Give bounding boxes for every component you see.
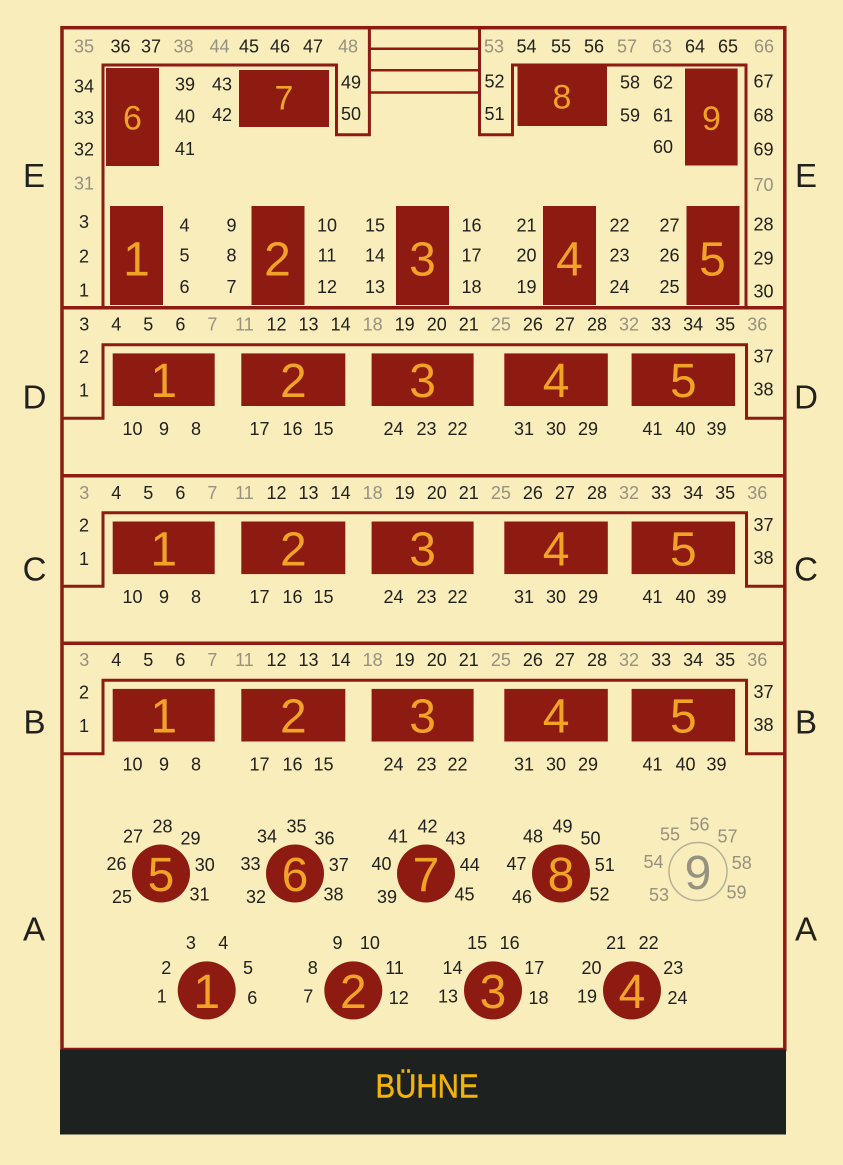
svg-text:21: 21 — [459, 650, 479, 670]
svg-text:66: 66 — [754, 37, 774, 57]
svg-text:30: 30 — [546, 587, 566, 607]
svg-text:28: 28 — [587, 315, 607, 335]
svg-text:3: 3 — [480, 966, 507, 1019]
svg-text:1: 1 — [79, 381, 89, 401]
svg-text:52: 52 — [589, 885, 609, 905]
svg-text:7: 7 — [303, 987, 313, 1007]
svg-text:20: 20 — [581, 958, 601, 978]
svg-text:27: 27 — [555, 483, 575, 503]
svg-text:7: 7 — [275, 79, 294, 117]
svg-text:35: 35 — [715, 650, 735, 670]
svg-text:23: 23 — [416, 419, 436, 439]
svg-text:20: 20 — [427, 483, 447, 503]
svg-text:38: 38 — [753, 380, 773, 400]
svg-text:26: 26 — [659, 246, 679, 266]
svg-text:30: 30 — [195, 855, 215, 875]
svg-text:1: 1 — [150, 691, 177, 744]
svg-text:3: 3 — [409, 691, 436, 744]
svg-text:55: 55 — [660, 825, 680, 845]
svg-text:33: 33 — [74, 108, 94, 128]
svg-text:C: C — [794, 551, 818, 588]
svg-text:34: 34 — [683, 483, 703, 503]
svg-text:15: 15 — [313, 419, 333, 439]
svg-text:43: 43 — [212, 75, 232, 95]
svg-text:35: 35 — [286, 817, 306, 837]
svg-text:21: 21 — [459, 315, 479, 335]
svg-text:47: 47 — [303, 37, 323, 57]
svg-text:25: 25 — [491, 483, 511, 503]
svg-text:20: 20 — [427, 650, 447, 670]
svg-text:20: 20 — [516, 246, 536, 266]
svg-text:36: 36 — [314, 829, 334, 849]
svg-text:27: 27 — [123, 827, 143, 847]
svg-text:30: 30 — [753, 282, 773, 302]
svg-text:5: 5 — [243, 958, 253, 978]
svg-text:12: 12 — [389, 988, 409, 1008]
svg-text:31: 31 — [189, 885, 209, 905]
svg-text:60: 60 — [653, 137, 673, 157]
svg-text:4: 4 — [218, 933, 228, 953]
svg-text:2: 2 — [79, 515, 89, 535]
svg-text:1: 1 — [79, 716, 89, 736]
svg-text:1: 1 — [150, 355, 177, 408]
svg-text:12: 12 — [266, 650, 286, 670]
svg-text:1: 1 — [193, 966, 220, 1019]
svg-text:9: 9 — [159, 587, 169, 607]
svg-text:13: 13 — [299, 315, 319, 335]
svg-text:10: 10 — [317, 216, 337, 236]
svg-text:6: 6 — [123, 99, 142, 137]
svg-text:5: 5 — [670, 523, 697, 576]
svg-text:32: 32 — [619, 483, 639, 503]
svg-text:56: 56 — [689, 815, 709, 835]
svg-text:11: 11 — [235, 315, 254, 335]
svg-text:18: 18 — [363, 483, 383, 503]
svg-text:26: 26 — [523, 650, 543, 670]
svg-text:4: 4 — [556, 234, 583, 287]
svg-text:25: 25 — [659, 277, 679, 297]
svg-text:16: 16 — [461, 216, 481, 236]
svg-text:15: 15 — [313, 755, 333, 775]
svg-text:46: 46 — [270, 37, 290, 57]
svg-text:6: 6 — [282, 849, 309, 902]
svg-text:40: 40 — [175, 107, 195, 127]
svg-text:3: 3 — [409, 355, 436, 408]
svg-text:32: 32 — [246, 887, 266, 907]
svg-text:26: 26 — [523, 315, 543, 335]
svg-text:5: 5 — [670, 691, 697, 744]
svg-text:8: 8 — [553, 78, 572, 116]
svg-text:32: 32 — [619, 315, 639, 335]
svg-text:18: 18 — [528, 988, 548, 1008]
svg-text:41: 41 — [175, 139, 195, 159]
svg-text:41: 41 — [388, 827, 408, 847]
svg-text:15: 15 — [313, 587, 333, 607]
svg-text:39: 39 — [377, 887, 397, 907]
svg-text:6: 6 — [179, 277, 189, 297]
svg-text:17: 17 — [249, 587, 269, 607]
svg-text:10: 10 — [122, 755, 142, 775]
svg-text:29: 29 — [578, 755, 598, 775]
svg-text:2: 2 — [161, 958, 171, 978]
svg-text:28: 28 — [587, 483, 607, 503]
svg-text:7: 7 — [207, 650, 217, 670]
svg-text:8: 8 — [191, 755, 201, 775]
svg-text:2: 2 — [340, 966, 367, 1019]
svg-text:62: 62 — [653, 73, 673, 93]
svg-text:16: 16 — [282, 419, 302, 439]
svg-text:27: 27 — [659, 216, 679, 236]
svg-text:14: 14 — [365, 246, 385, 266]
svg-text:9: 9 — [332, 933, 342, 953]
svg-text:36: 36 — [110, 37, 130, 57]
svg-text:42: 42 — [212, 105, 232, 125]
svg-text:37: 37 — [329, 855, 349, 875]
svg-text:4: 4 — [111, 650, 121, 670]
svg-text:35: 35 — [715, 483, 735, 503]
svg-text:51: 51 — [595, 855, 615, 875]
svg-text:4: 4 — [111, 315, 121, 335]
svg-text:3: 3 — [79, 483, 89, 503]
svg-text:25: 25 — [491, 315, 511, 335]
svg-text:23: 23 — [663, 958, 683, 978]
svg-text:39: 39 — [706, 419, 726, 439]
svg-text:10: 10 — [122, 587, 142, 607]
svg-text:11: 11 — [318, 246, 337, 266]
svg-text:28: 28 — [587, 650, 607, 670]
svg-text:57: 57 — [617, 37, 637, 57]
svg-text:19: 19 — [395, 483, 415, 503]
svg-text:7: 7 — [226, 277, 236, 297]
svg-text:49: 49 — [341, 73, 361, 93]
svg-text:8: 8 — [548, 849, 575, 902]
svg-text:B: B — [23, 704, 45, 741]
svg-text:69: 69 — [753, 140, 773, 160]
svg-text:55: 55 — [551, 37, 571, 57]
svg-text:44: 44 — [209, 37, 229, 57]
svg-text:40: 40 — [675, 419, 695, 439]
svg-text:24: 24 — [383, 755, 403, 775]
svg-text:37: 37 — [753, 682, 773, 702]
svg-text:58: 58 — [732, 853, 752, 873]
svg-text:19: 19 — [577, 987, 597, 1007]
svg-text:5: 5 — [143, 650, 153, 670]
svg-text:19: 19 — [395, 315, 415, 335]
svg-text:E: E — [795, 157, 817, 194]
svg-text:38: 38 — [753, 715, 773, 735]
svg-text:12: 12 — [317, 277, 337, 297]
svg-text:2: 2 — [79, 683, 89, 703]
svg-text:1: 1 — [123, 234, 150, 287]
svg-text:39: 39 — [706, 755, 726, 775]
svg-text:2: 2 — [280, 523, 307, 576]
svg-text:54: 54 — [643, 852, 663, 872]
svg-text:37: 37 — [753, 515, 773, 535]
svg-text:61: 61 — [653, 106, 673, 126]
svg-text:33: 33 — [651, 315, 671, 335]
svg-text:4: 4 — [619, 966, 646, 1019]
svg-text:23: 23 — [416, 755, 436, 775]
svg-text:29: 29 — [753, 249, 773, 269]
svg-text:29: 29 — [578, 587, 598, 607]
svg-text:39: 39 — [175, 75, 195, 95]
svg-text:30: 30 — [546, 419, 566, 439]
svg-text:22: 22 — [447, 755, 467, 775]
svg-text:36: 36 — [747, 315, 767, 335]
svg-text:40: 40 — [371, 854, 391, 874]
svg-text:9: 9 — [702, 100, 721, 138]
svg-text:A: A — [795, 911, 817, 948]
svg-text:13: 13 — [438, 987, 458, 1007]
svg-text:B: B — [795, 704, 817, 741]
svg-text:33: 33 — [651, 483, 671, 503]
svg-text:14: 14 — [331, 315, 351, 335]
svg-text:29: 29 — [578, 419, 598, 439]
svg-text:23: 23 — [416, 587, 436, 607]
svg-text:38: 38 — [173, 37, 193, 57]
svg-text:31: 31 — [514, 419, 534, 439]
svg-text:13: 13 — [299, 650, 319, 670]
svg-text:70: 70 — [753, 175, 773, 195]
svg-text:5: 5 — [699, 234, 726, 287]
svg-text:41: 41 — [642, 755, 662, 775]
svg-text:8: 8 — [191, 587, 201, 607]
svg-text:21: 21 — [606, 933, 626, 953]
svg-text:34: 34 — [257, 827, 277, 847]
svg-text:57: 57 — [717, 827, 737, 847]
svg-text:23: 23 — [609, 246, 629, 266]
svg-text:27: 27 — [555, 315, 575, 335]
svg-text:40: 40 — [675, 755, 695, 775]
svg-text:12: 12 — [266, 315, 286, 335]
svg-text:11: 11 — [235, 650, 254, 670]
svg-text:4: 4 — [543, 355, 570, 408]
svg-text:45: 45 — [454, 885, 474, 905]
svg-text:12: 12 — [266, 483, 286, 503]
svg-text:52: 52 — [484, 72, 504, 92]
svg-text:21: 21 — [516, 216, 536, 236]
svg-text:64: 64 — [685, 37, 705, 57]
svg-text:37: 37 — [753, 347, 773, 367]
svg-text:E: E — [23, 157, 45, 194]
svg-text:48: 48 — [523, 827, 543, 847]
svg-text:8: 8 — [226, 246, 236, 266]
svg-text:4: 4 — [111, 483, 121, 503]
svg-text:54: 54 — [516, 37, 536, 57]
svg-text:34: 34 — [74, 77, 94, 97]
svg-text:15: 15 — [365, 216, 385, 236]
svg-text:5: 5 — [143, 315, 153, 335]
svg-text:4: 4 — [179, 216, 189, 236]
svg-text:45: 45 — [239, 37, 259, 57]
svg-text:67: 67 — [753, 72, 773, 92]
svg-text:3: 3 — [79, 315, 89, 335]
svg-text:40: 40 — [675, 587, 695, 607]
svg-text:8: 8 — [308, 958, 318, 978]
svg-text:1: 1 — [157, 987, 167, 1007]
svg-text:16: 16 — [500, 933, 520, 953]
svg-text:21: 21 — [459, 483, 479, 503]
svg-text:16: 16 — [282, 755, 302, 775]
svg-text:10: 10 — [122, 419, 142, 439]
svg-text:9: 9 — [226, 216, 236, 236]
svg-text:1: 1 — [150, 523, 177, 576]
svg-text:39: 39 — [706, 587, 726, 607]
svg-text:1: 1 — [79, 549, 89, 569]
svg-text:37: 37 — [141, 37, 161, 57]
svg-text:47: 47 — [506, 854, 526, 874]
svg-text:31: 31 — [74, 174, 94, 194]
svg-text:19: 19 — [516, 277, 536, 297]
svg-text:3: 3 — [79, 212, 89, 232]
svg-text:59: 59 — [726, 883, 746, 903]
svg-text:10: 10 — [360, 933, 380, 953]
svg-text:13: 13 — [299, 483, 319, 503]
svg-text:6: 6 — [175, 315, 185, 335]
svg-text:14: 14 — [331, 650, 351, 670]
svg-text:41: 41 — [642, 587, 662, 607]
svg-text:56: 56 — [584, 37, 604, 57]
svg-text:18: 18 — [461, 277, 481, 297]
svg-text:6: 6 — [247, 988, 257, 1008]
svg-text:19: 19 — [395, 650, 415, 670]
svg-text:3: 3 — [186, 933, 196, 953]
svg-text:3: 3 — [409, 234, 436, 287]
svg-text:5: 5 — [670, 355, 697, 408]
svg-text:35: 35 — [715, 315, 735, 335]
svg-text:4: 4 — [543, 691, 570, 744]
svg-text:A: A — [23, 911, 45, 948]
svg-text:7: 7 — [207, 315, 217, 335]
svg-text:28: 28 — [753, 215, 773, 235]
svg-text:5: 5 — [143, 483, 153, 503]
svg-text:22: 22 — [609, 216, 629, 236]
svg-text:5: 5 — [179, 246, 189, 266]
svg-text:35: 35 — [74, 37, 94, 57]
svg-text:24: 24 — [609, 277, 629, 297]
svg-text:50: 50 — [580, 829, 600, 849]
svg-text:43: 43 — [445, 829, 465, 849]
svg-text:58: 58 — [620, 73, 640, 93]
svg-text:50: 50 — [341, 104, 361, 124]
svg-text:17: 17 — [249, 419, 269, 439]
svg-text:17: 17 — [249, 755, 269, 775]
svg-text:26: 26 — [106, 854, 126, 874]
svg-text:48: 48 — [338, 37, 358, 57]
svg-text:27: 27 — [555, 650, 575, 670]
svg-text:32: 32 — [619, 650, 639, 670]
svg-text:17: 17 — [461, 246, 481, 266]
svg-text:2: 2 — [264, 234, 291, 287]
svg-text:9: 9 — [159, 755, 169, 775]
svg-text:44: 44 — [460, 855, 480, 875]
svg-text:33: 33 — [651, 650, 671, 670]
svg-text:28: 28 — [152, 817, 172, 837]
svg-text:34: 34 — [683, 650, 703, 670]
svg-text:6: 6 — [175, 650, 185, 670]
svg-text:11: 11 — [385, 958, 404, 978]
svg-text:53: 53 — [484, 37, 504, 57]
svg-text:25: 25 — [491, 650, 511, 670]
svg-text:31: 31 — [514, 587, 534, 607]
svg-text:9: 9 — [685, 847, 712, 900]
svg-text:17: 17 — [524, 958, 544, 978]
svg-text:5: 5 — [148, 849, 175, 902]
svg-text:3: 3 — [79, 650, 89, 670]
svg-text:30: 30 — [546, 755, 566, 775]
svg-text:41: 41 — [642, 419, 662, 439]
svg-text:26: 26 — [523, 483, 543, 503]
svg-text:22: 22 — [639, 933, 659, 953]
svg-text:2: 2 — [79, 247, 89, 267]
svg-text:49: 49 — [552, 817, 572, 837]
svg-text:42: 42 — [417, 817, 437, 837]
svg-text:15: 15 — [467, 933, 487, 953]
svg-text:31: 31 — [514, 755, 534, 775]
svg-text:63: 63 — [652, 37, 672, 57]
svg-text:BÜHNE: BÜHNE — [376, 1069, 479, 1106]
svg-text:3: 3 — [409, 523, 436, 576]
svg-text:38: 38 — [753, 548, 773, 568]
svg-text:2: 2 — [280, 355, 307, 408]
svg-text:1: 1 — [79, 281, 89, 301]
svg-text:D: D — [794, 379, 818, 416]
svg-text:4: 4 — [543, 523, 570, 576]
svg-text:25: 25 — [112, 887, 132, 907]
svg-text:20: 20 — [427, 315, 447, 335]
svg-text:65: 65 — [718, 37, 738, 57]
svg-text:53: 53 — [649, 885, 669, 905]
svg-text:59: 59 — [620, 106, 640, 126]
svg-text:36: 36 — [747, 483, 767, 503]
svg-text:9: 9 — [159, 419, 169, 439]
svg-text:38: 38 — [323, 885, 343, 905]
svg-text:29: 29 — [180, 829, 200, 849]
svg-text:24: 24 — [667, 988, 687, 1008]
svg-text:51: 51 — [484, 104, 504, 124]
svg-text:34: 34 — [683, 315, 703, 335]
svg-text:13: 13 — [365, 277, 385, 297]
svg-text:16: 16 — [282, 587, 302, 607]
svg-text:2: 2 — [280, 691, 307, 744]
svg-text:18: 18 — [363, 315, 383, 335]
svg-text:7: 7 — [413, 849, 440, 902]
svg-text:68: 68 — [753, 106, 773, 126]
svg-text:36: 36 — [747, 650, 767, 670]
svg-text:8: 8 — [191, 419, 201, 439]
svg-text:33: 33 — [240, 854, 260, 874]
svg-text:22: 22 — [447, 587, 467, 607]
svg-text:D: D — [23, 379, 47, 416]
svg-text:14: 14 — [442, 958, 462, 978]
svg-text:24: 24 — [383, 587, 403, 607]
svg-text:18: 18 — [363, 650, 383, 670]
svg-text:7: 7 — [207, 483, 217, 503]
svg-text:11: 11 — [235, 483, 254, 503]
svg-text:24: 24 — [383, 419, 403, 439]
svg-text:32: 32 — [74, 140, 94, 160]
svg-text:6: 6 — [175, 483, 185, 503]
svg-text:C: C — [23, 551, 47, 588]
svg-text:2: 2 — [79, 347, 89, 367]
svg-text:14: 14 — [331, 483, 351, 503]
svg-text:46: 46 — [512, 887, 532, 907]
svg-text:22: 22 — [447, 419, 467, 439]
